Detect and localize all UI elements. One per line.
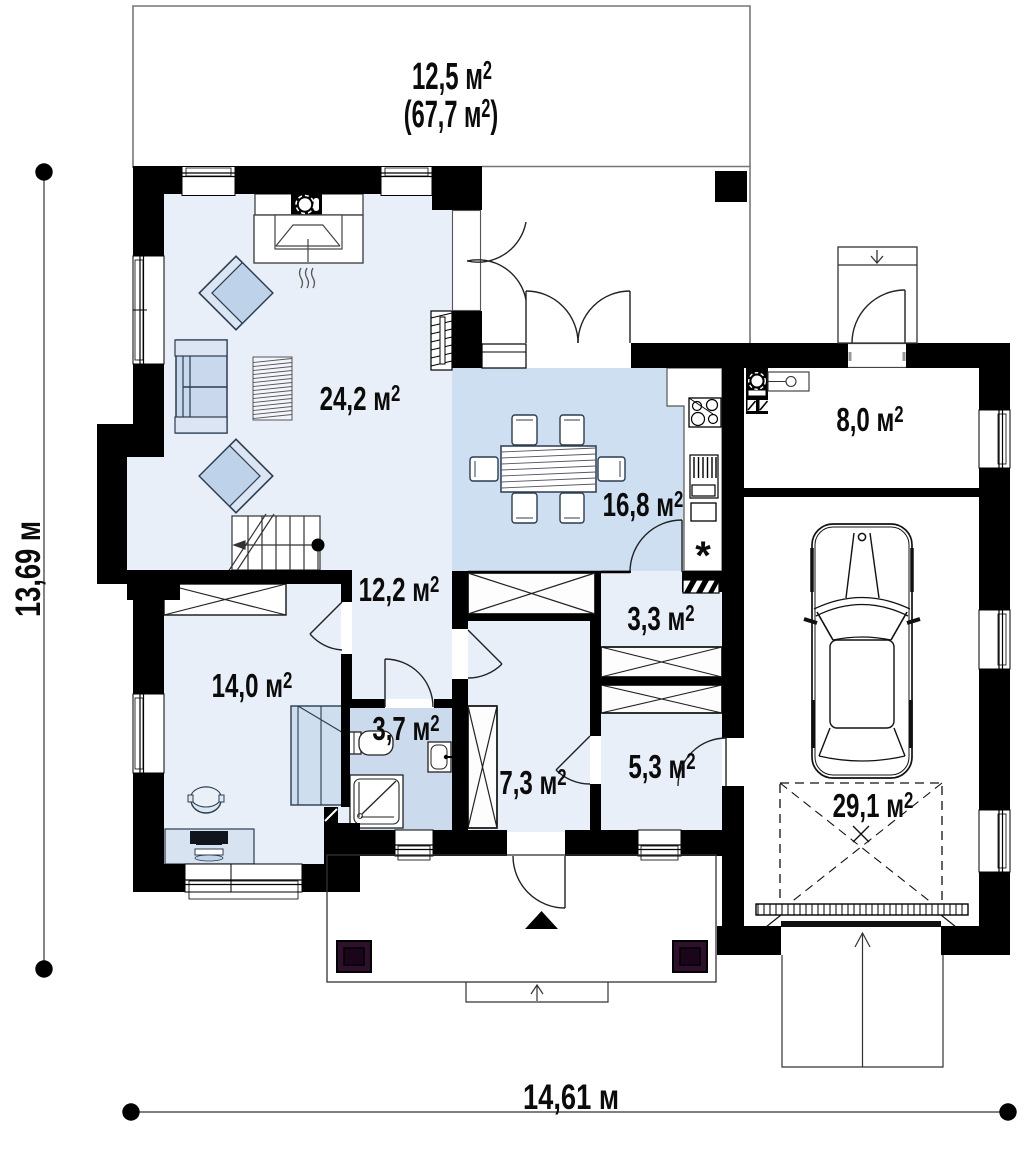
svg-text:16,8 м2: 16,8 м2	[603, 487, 684, 524]
svg-text:24,2 м2: 24,2 м2	[320, 381, 401, 418]
svg-text:3,7 м2: 3,7 м2	[372, 711, 439, 748]
svg-text:8,0 м2: 8,0 м2	[836, 402, 903, 439]
svg-text:14,0 м2: 14,0 м2	[212, 668, 293, 705]
svg-text:12,5 м2: 12,5 м2	[412, 54, 492, 97]
svg-text:3,3 м2: 3,3 м2	[627, 601, 694, 638]
svg-text:12,2 м2: 12,2 м2	[359, 572, 440, 609]
svg-text:7,3 м2: 7,3 м2	[499, 765, 566, 802]
svg-text:5,3 м2: 5,3 м2	[628, 749, 695, 786]
svg-text:14,61 м: 14,61 м	[523, 1078, 619, 1117]
svg-text:29,1 м2: 29,1 м2	[833, 788, 914, 825]
svg-text:13,69 м: 13,69 м	[9, 521, 48, 617]
